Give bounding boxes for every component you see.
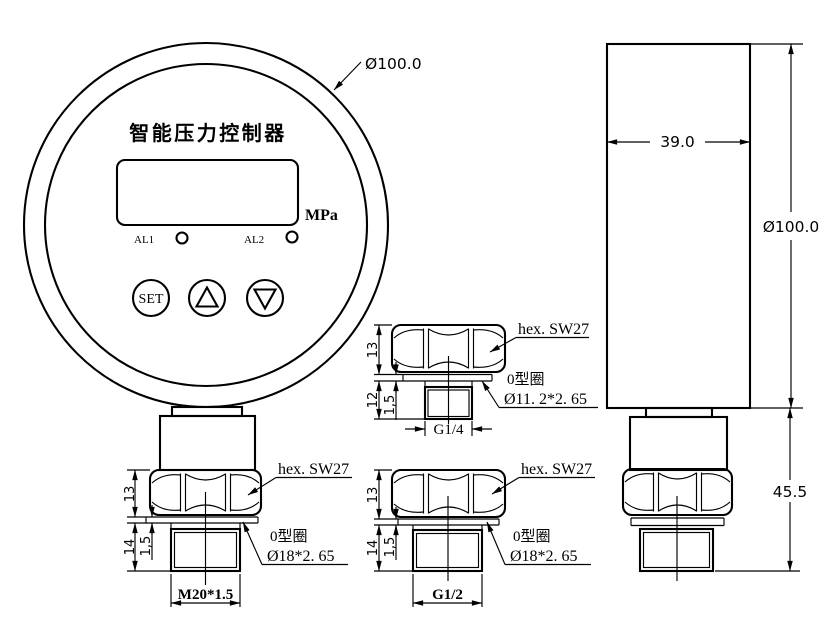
g14-oring-thickness: 1,5 <box>383 395 398 416</box>
side-width-value: 39.0 <box>660 133 695 151</box>
detail-g12: 13 14 1,5 G1/2 hex. SW27 0型圈 Ø18*2. 65 <box>366 461 595 607</box>
front-oring-label: 0型圈 <box>270 528 308 545</box>
set-button-label: SET <box>139 292 164 307</box>
front-stem <box>146 407 261 585</box>
side-stem-block <box>630 417 727 470</box>
g12-thread-length: 14 <box>366 540 381 557</box>
side-stem-length-dimension: 45.5 <box>715 408 807 571</box>
g12-left-dimensions: 13 14 1,5 <box>366 470 413 571</box>
g14-oring-label: 0型圈 <box>507 371 545 388</box>
g14-oring-spec: Ø11. 2*2. 65 <box>504 391 587 408</box>
g14-thread-length: 12 <box>366 392 381 409</box>
lcd-display <box>117 160 298 225</box>
g14-hex-label: hex. SW27 <box>518 321 589 338</box>
product-title: 智能压力控制器 <box>129 121 287 145</box>
front-left-dimensions: 13 14 1,5 <box>123 470 171 571</box>
front-oring-spec: Ø18*2. 65 <box>267 548 335 565</box>
side-stem-length-value: 45.5 <box>773 483 808 501</box>
alarm2-label: AL2 <box>244 234 264 246</box>
front-diameter-dimension: Ø100.0 <box>334 55 422 90</box>
up-arrow-icon <box>197 288 218 307</box>
pressure-controller-drawing: 智能压力控制器 MPa AL1 AL2 SET Ø100.0 <box>0 0 822 628</box>
thread-m20 <box>171 492 240 585</box>
side-view: 39.0 Ø100.0 <box>607 44 819 581</box>
side-stem-flange <box>646 408 712 417</box>
g12-oring-label: 0型圈 <box>513 528 551 545</box>
side-width-dimension: 39.0 <box>607 133 750 151</box>
side-body <box>607 44 750 408</box>
front-callouts: hex. SW27 0型圈 Ø18*2. 65 <box>243 461 352 565</box>
g14-callouts: hex. SW27 0型圈 Ø11. 2*2. 65 <box>482 321 598 408</box>
front-oring-thickness: 1,5 <box>139 536 154 557</box>
front-view: 智能压力控制器 MPa AL1 AL2 SET Ø100.0 <box>24 43 422 607</box>
g12-hex-label: hex. SW27 <box>521 461 592 478</box>
front-diameter-value: Ø100.0 <box>365 55 422 73</box>
front-hex-height: 13 <box>123 486 138 503</box>
g12-oring-thickness: 1,5 <box>383 537 398 558</box>
g12-hex-height: 13 <box>366 487 381 504</box>
technical-drawing-sheet: 智能压力控制器 MPa AL1 AL2 SET Ø100.0 <box>0 0 822 628</box>
stem-block <box>160 416 255 470</box>
g14-thread-spec-dimension: G1/4 <box>405 421 492 438</box>
stem-flange <box>172 407 242 416</box>
oring-washer <box>146 517 258 529</box>
g12-thread-spec: G1/2 <box>432 587 463 603</box>
side-diameter-dimension: Ø100.0 <box>750 44 819 408</box>
alarm1-led <box>177 233 188 244</box>
g12-oring-spec: Ø18*2. 65 <box>510 548 578 565</box>
detail-g14: 13 12 1,5 G1/4 hex. SW27 0型圈 Ø11. 2*2. 6… <box>366 321 598 438</box>
alarm1-label: AL1 <box>134 234 154 246</box>
front-hex-label: hex. SW27 <box>278 461 349 478</box>
g14-thread-spec: G1/4 <box>434 422 465 438</box>
unit-label: MPa <box>305 207 338 224</box>
g14-oring-washer <box>403 375 492 388</box>
front-thread-spec: M20*1.5 <box>178 587 233 603</box>
front-thread-length: 14 <box>123 539 138 556</box>
side-diameter-value: Ø100.0 <box>763 218 820 236</box>
side-stem <box>623 408 732 581</box>
alarm2-led <box>287 232 298 243</box>
g14-hex-height: 13 <box>366 342 381 359</box>
down-arrow-icon <box>255 290 276 309</box>
